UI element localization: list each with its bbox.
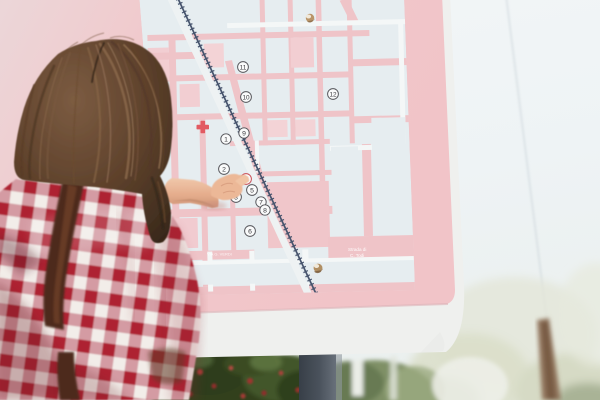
svg-text:VIA G. VERDI: VIA G. VERDI: [207, 252, 232, 257]
svg-text:6: 6: [248, 229, 252, 236]
svg-text:C. Todi: C. Todi: [350, 253, 364, 258]
svg-text:7: 7: [259, 200, 263, 207]
svg-text:12: 12: [329, 92, 337, 99]
svg-text:9: 9: [242, 131, 246, 138]
svg-text:8: 8: [263, 208, 267, 215]
svg-text:10: 10: [242, 95, 250, 102]
svg-text:1: 1: [224, 137, 228, 144]
svg-text:2: 2: [222, 167, 226, 174]
svg-text:11: 11: [240, 65, 247, 72]
svg-text:Strada di: Strada di: [348, 247, 366, 252]
svg-text:5: 5: [250, 188, 254, 195]
